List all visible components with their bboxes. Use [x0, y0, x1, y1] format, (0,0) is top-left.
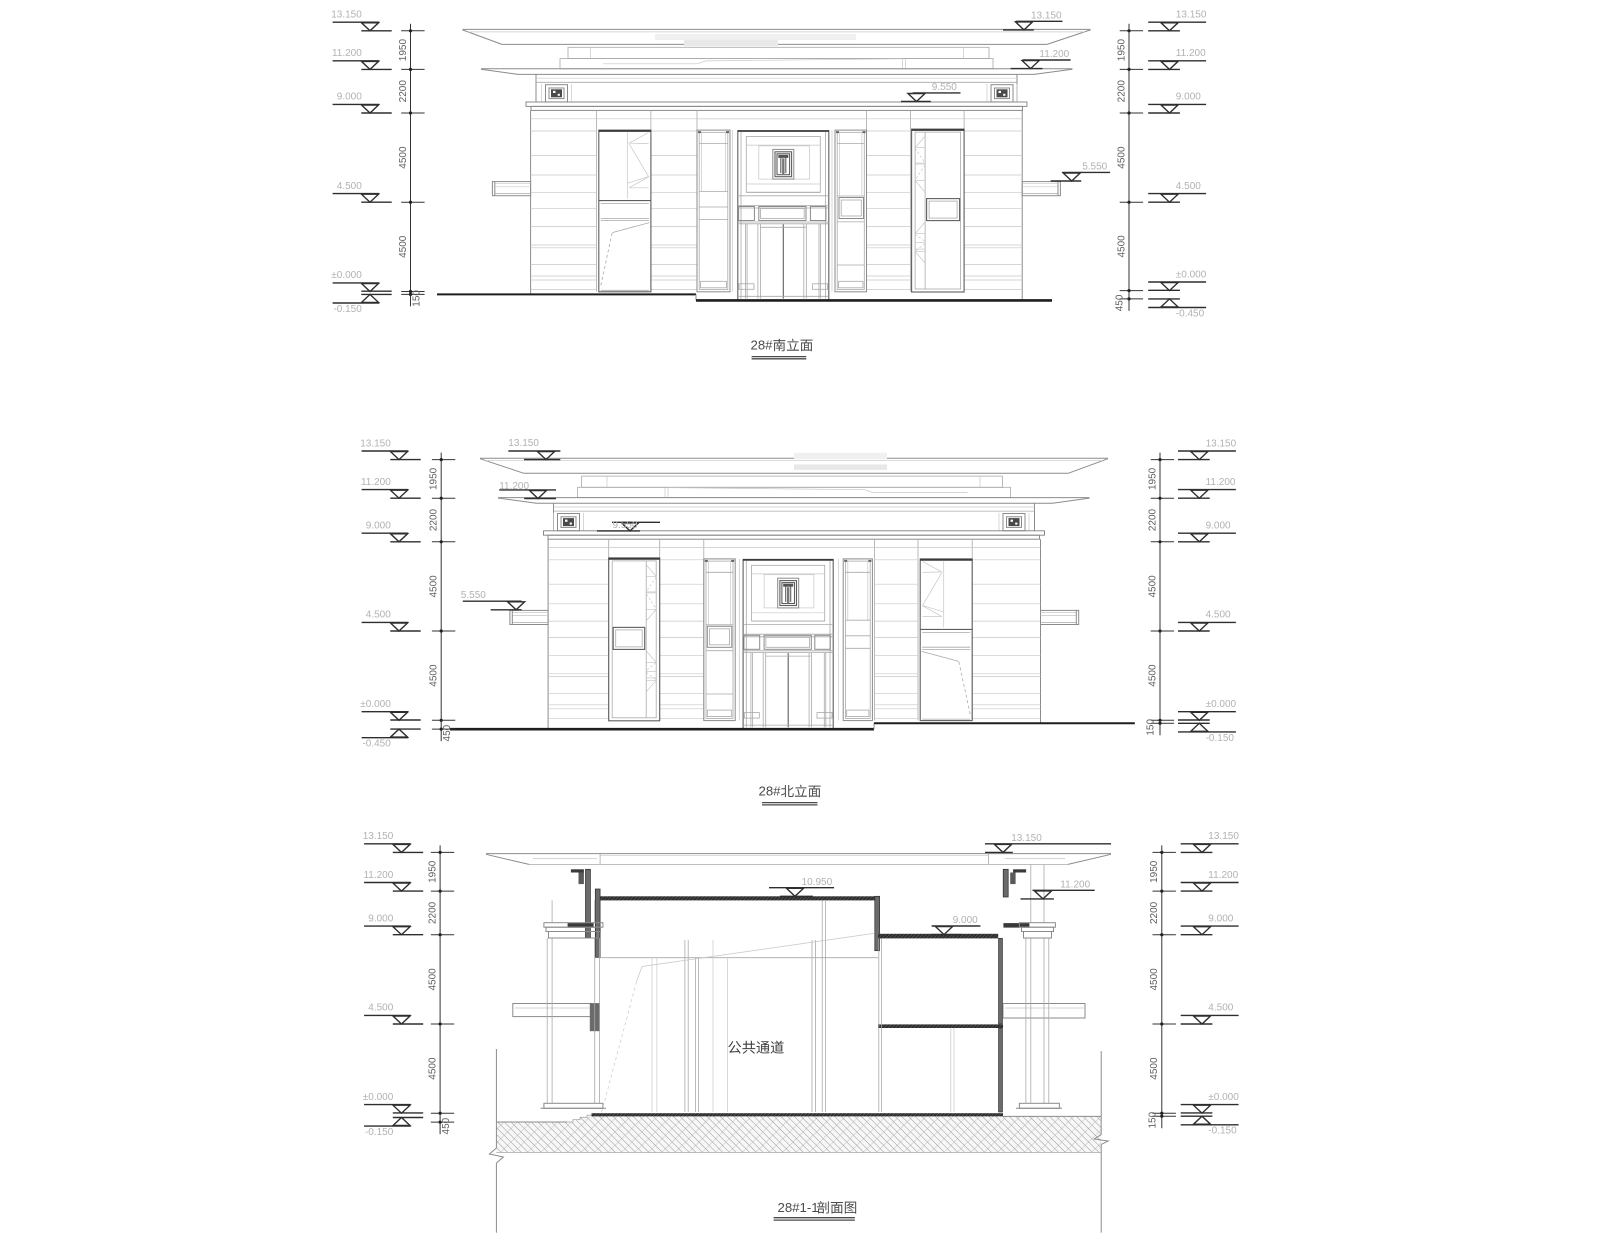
svg-text:13.150: 13.150	[1208, 831, 1239, 842]
svg-text:4500: 4500	[429, 575, 440, 598]
svg-text:±0.000: ±0.000	[331, 270, 362, 281]
svg-text:28#: 28#	[751, 338, 774, 353]
svg-text:2200: 2200	[1116, 80, 1127, 103]
svg-text:150: 150	[1148, 1111, 1159, 1128]
svg-text:4.500: 4.500	[366, 610, 391, 621]
svg-text:2200: 2200	[429, 508, 440, 531]
svg-text:11.200: 11.200	[1060, 879, 1090, 890]
svg-text:450: 450	[441, 1117, 452, 1134]
svg-text:11.200: 11.200	[332, 48, 362, 59]
svg-text:9.000: 9.000	[368, 913, 393, 924]
svg-text:9.000: 9.000	[1208, 913, 1233, 924]
svg-text:4500: 4500	[427, 1057, 438, 1080]
svg-text:11.200: 11.200	[1176, 48, 1206, 59]
svg-text:-0.450: -0.450	[362, 739, 391, 750]
svg-text:9.000: 9.000	[1176, 92, 1201, 103]
svg-text:-0.150: -0.150	[365, 1127, 394, 1138]
svg-text:11.200: 11.200	[1208, 870, 1238, 881]
svg-text:4500: 4500	[1116, 235, 1127, 258]
svg-text:9.000: 9.000	[953, 915, 978, 926]
svg-text:2200: 2200	[398, 80, 409, 103]
svg-text:±0.000: ±0.000	[1208, 1092, 1239, 1103]
svg-text:4.500: 4.500	[337, 181, 362, 192]
svg-text:1950: 1950	[1149, 860, 1160, 883]
svg-text:2200: 2200	[1149, 901, 1160, 924]
svg-text:28#1-1: 28#1-1	[778, 1200, 819, 1215]
svg-text:9.000: 9.000	[1206, 521, 1231, 532]
svg-text:10.950: 10.950	[802, 877, 833, 888]
svg-text:4500: 4500	[398, 146, 409, 169]
svg-text:13.150: 13.150	[1031, 10, 1062, 21]
svg-text:4.500: 4.500	[1208, 1003, 1233, 1014]
svg-text:5.550: 5.550	[1082, 162, 1107, 173]
svg-text:150: 150	[412, 290, 423, 307]
svg-text:13.150: 13.150	[1011, 833, 1042, 844]
svg-text:1950: 1950	[427, 860, 438, 883]
svg-text:4500: 4500	[1149, 1057, 1160, 1080]
svg-text:28#: 28#	[759, 784, 782, 799]
svg-text:4500: 4500	[1147, 664, 1158, 687]
svg-text:9.550: 9.550	[613, 520, 638, 531]
svg-text:11.200: 11.200	[1039, 49, 1069, 60]
svg-text:13.150: 13.150	[331, 10, 362, 21]
svg-text:4.500: 4.500	[1206, 610, 1231, 621]
svg-text:13.150: 13.150	[363, 831, 394, 842]
svg-text:13.150: 13.150	[1176, 10, 1207, 21]
svg-text:4500: 4500	[1116, 146, 1127, 169]
svg-text:4500: 4500	[1149, 968, 1160, 991]
svg-text:1950: 1950	[1116, 39, 1127, 62]
svg-text:4500: 4500	[1147, 575, 1158, 598]
svg-text:13.150: 13.150	[508, 438, 539, 449]
svg-text:450: 450	[442, 724, 453, 741]
svg-text:-0.150: -0.150	[333, 304, 362, 315]
svg-text:450: 450	[1115, 294, 1126, 311]
svg-text:11.200: 11.200	[1206, 477, 1236, 488]
svg-text:2200: 2200	[427, 901, 438, 924]
svg-text:11.200: 11.200	[499, 481, 529, 492]
svg-text:5.550: 5.550	[461, 590, 486, 601]
svg-text:±0.000: ±0.000	[1176, 269, 1207, 280]
svg-text:±0.000: ±0.000	[360, 699, 391, 710]
svg-text:13.150: 13.150	[360, 438, 391, 449]
svg-text:9.550: 9.550	[932, 82, 957, 93]
svg-text:13.150: 13.150	[1206, 438, 1237, 449]
svg-text:-0.150: -0.150	[1208, 1126, 1237, 1137]
svg-text:4500: 4500	[429, 664, 440, 687]
svg-text:1950: 1950	[398, 39, 409, 62]
svg-text:±0.000: ±0.000	[1206, 699, 1237, 710]
svg-text:4.500: 4.500	[1176, 181, 1201, 192]
svg-text:150: 150	[1146, 719, 1157, 736]
svg-text:4500: 4500	[427, 968, 438, 991]
svg-text:-0.150: -0.150	[1206, 733, 1235, 744]
svg-text:11.200: 11.200	[361, 477, 391, 488]
svg-text:4500: 4500	[398, 235, 409, 258]
svg-text:1950: 1950	[429, 467, 440, 490]
svg-text:-0.450: -0.450	[1176, 308, 1205, 319]
svg-text:1950: 1950	[1147, 467, 1158, 490]
svg-text:9.000: 9.000	[366, 521, 391, 532]
svg-text:4.500: 4.500	[368, 1003, 393, 1014]
svg-text:9.000: 9.000	[337, 92, 362, 103]
svg-text:±0.000: ±0.000	[363, 1092, 394, 1103]
svg-text:2200: 2200	[1147, 508, 1158, 531]
svg-text:11.200: 11.200	[363, 870, 393, 881]
